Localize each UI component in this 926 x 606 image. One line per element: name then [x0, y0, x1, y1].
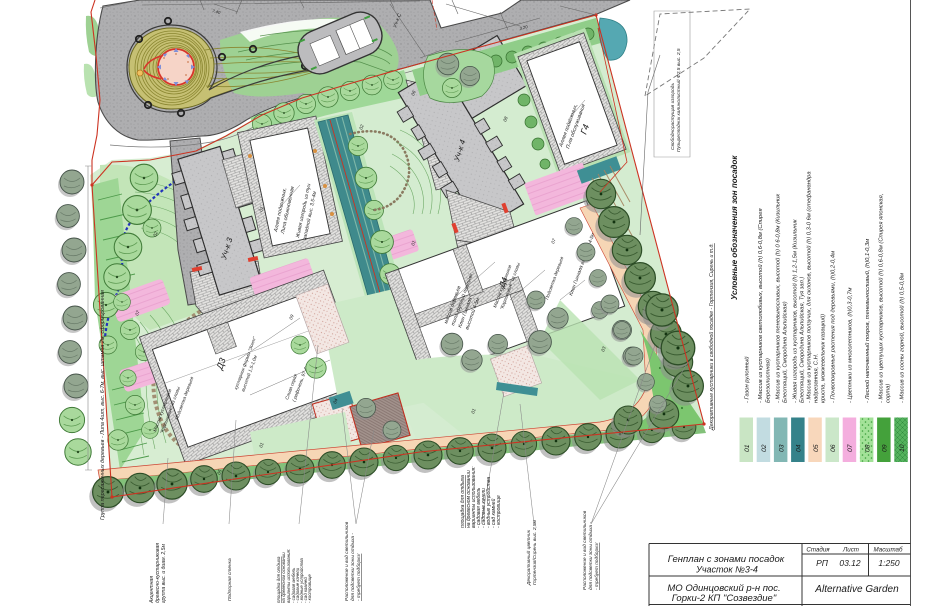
svg-text:02: 02	[761, 444, 768, 452]
svg-text:сорта): сорта)	[886, 384, 892, 403]
svg-text:- Массив из сосны горной, высо: - Массив из сосны горной, высотой (h) 0,…	[898, 273, 905, 403]
svg-text:06: 06	[830, 444, 837, 452]
svg-text:04: 04	[796, 444, 803, 452]
svg-text:07: 07	[847, 444, 854, 452]
svg-text:- Цветники из многолетников, (: - Цветники из многолетников, (h)0,3-0,7м	[848, 288, 854, 403]
svg-text:Пузыреплодник калинолистный Ф2: Пузыреплодник калинолистный Ф2,5 выс. 2,…	[675, 48, 682, 152]
svg-text:- Массив из цветущих кустарник: - Массив из цветущих кустарников, высото…	[878, 194, 885, 403]
svg-text:для подсветки зоны отдыха -: для подсветки зоны отдыха -	[588, 522, 594, 590]
svg-text:Участок №3-4: Участок №3-4	[695, 565, 758, 575]
svg-text:1:250: 1:250	[878, 558, 900, 568]
svg-text:- Живая изгородь из кустарнико: - Живая изгородь из кустарников, высотой…	[792, 219, 799, 403]
svg-text:группа выс. и диам. 2,5м: группа выс. и диам. 2,5м	[161, 544, 167, 603]
svg-text:- костровище: - костровище	[496, 495, 502, 528]
svg-text:03.12: 03.12	[839, 558, 861, 568]
svg-text:надрезанная, С.Н.: надрезанная, С.Н.	[813, 354, 819, 403]
svg-text:- Газон рулонный: - Газон рулонный	[744, 356, 751, 403]
svg-text:Декоративный цветник: Декоративный цветник	[525, 529, 532, 586]
svg-text:Блестящий, Смородина Альпийска: Блестящий, Смородина Альпийская, Туя зап…	[799, 277, 806, 403]
svg-text:РП: РП	[816, 558, 829, 568]
svg-text:10: 10	[899, 444, 906, 452]
svg-text:- Почвопокровные растения под: - Почвопокровные растения под деревьями,…	[831, 251, 837, 403]
svg-text:Березолистная): Березолистная)	[765, 358, 771, 403]
svg-text:Лист: Лист	[842, 547, 859, 554]
svg-text:для подсветки зоны отдыха -: для подсветки зоны отдыха -	[350, 533, 356, 601]
svg-text:08: 08	[864, 444, 871, 452]
svg-text:- костровище: - костровище	[307, 574, 312, 603]
svg-text:03: 03	[778, 444, 785, 452]
svg-text:- Массив из кустарников теневы: - Массив из кустарников теневыносливых, …	[774, 194, 781, 403]
svg-text:Расположение и вид светильнико: Расположение и вид светильников	[582, 510, 588, 590]
svg-text:01: 01	[744, 444, 751, 452]
svg-text:- Массив из кустарников ползуч: - Массив из кустарников ползучих, для ск…	[805, 171, 812, 403]
svg-text:- Лесной напочвенный покров, т: - Лесной напочвенный покров, теневыносли…	[864, 239, 871, 403]
svg-text:Генплан с зонами посадок: Генплан с зонами посадок	[668, 554, 785, 565]
svg-text:- Массив из кустарников светол: - Массив из кустарников светолюбивых, вы…	[757, 208, 764, 403]
svg-text:Стадия: Стадия	[806, 547, 830, 554]
svg-text:Блестящий, Смородина Альпийска: Блестящий, Смородина Альпийская)	[782, 301, 789, 403]
svg-text:Расположение и вид светильнико: Расположение и вид светильников	[344, 521, 350, 601]
svg-text:Подпорная стенка: Подпорная стенка	[227, 558, 233, 601]
svg-text:Группа пересаженных деревьев -: Группа пересаженных деревьев - Липа 4шт,…	[100, 290, 106, 520]
svg-text:Масштаб: Масштаб	[874, 547, 903, 554]
svg-text:05: 05	[813, 444, 820, 452]
svg-text:Декоративные кустарники в своб: Декоративные кустарники в свободной поса…	[708, 243, 715, 431]
svg-text:криспа, можжевельник казацкий): криспа, можжевельник казацкий)	[819, 314, 826, 403]
svg-text:Свободнорастущая изгородь: Свободнорастущая изгородь	[670, 83, 676, 150]
svg-text:- требует подборки!: - требует подборки!	[594, 542, 600, 590]
svg-text:Гортензия/Сирень выс. 2,5м: Гортензия/Сирень выс. 2,5м	[532, 520, 538, 585]
svg-text:Alternative Garden: Alternative Garden	[814, 584, 899, 595]
svg-text:Горки-2 КП "Созвездие": Горки-2 КП "Созвездие"	[672, 593, 777, 604]
svg-text:09: 09	[882, 444, 889, 452]
svg-text:- требует подборки!: - требует подборки!	[356, 553, 362, 601]
svg-text:Условные обозначения зон посад: Условные обозначения зон посадок	[730, 155, 739, 300]
